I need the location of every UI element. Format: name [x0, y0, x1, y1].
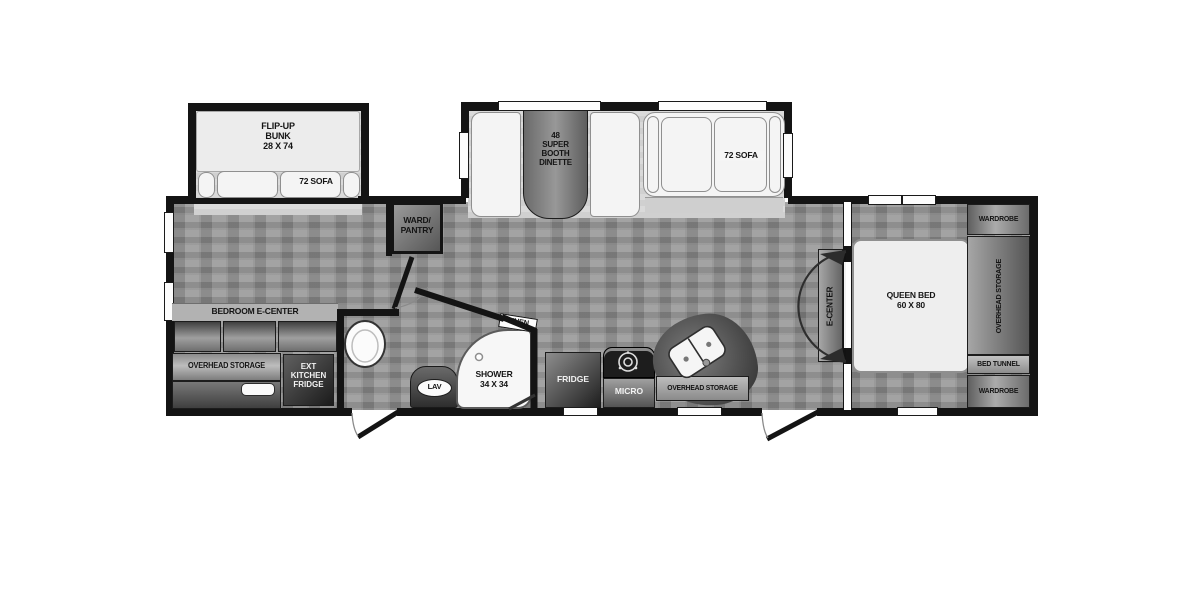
wall [415, 290, 504, 319]
burner-icon [619, 351, 638, 371]
shower-drain-icon [476, 354, 483, 361]
kitchen-sink-icon [666, 324, 728, 381]
main-entry-door-arc [762, 413, 768, 438]
toilet-icon [345, 321, 385, 367]
overlay-graphics [0, 0, 1200, 600]
bath-door-leaf [394, 257, 412, 309]
tv-swing-arc [798, 252, 846, 361]
wall [502, 317, 536, 331]
floor-plan: FLIP-UP BUNK 28 X 74 72 SOFA 48 SUPER BO… [0, 0, 1200, 600]
bath-entry-door-arc [352, 413, 358, 436]
bath-entry-door-leaf [358, 412, 398, 437]
main-entry-door-leaf [767, 412, 818, 439]
